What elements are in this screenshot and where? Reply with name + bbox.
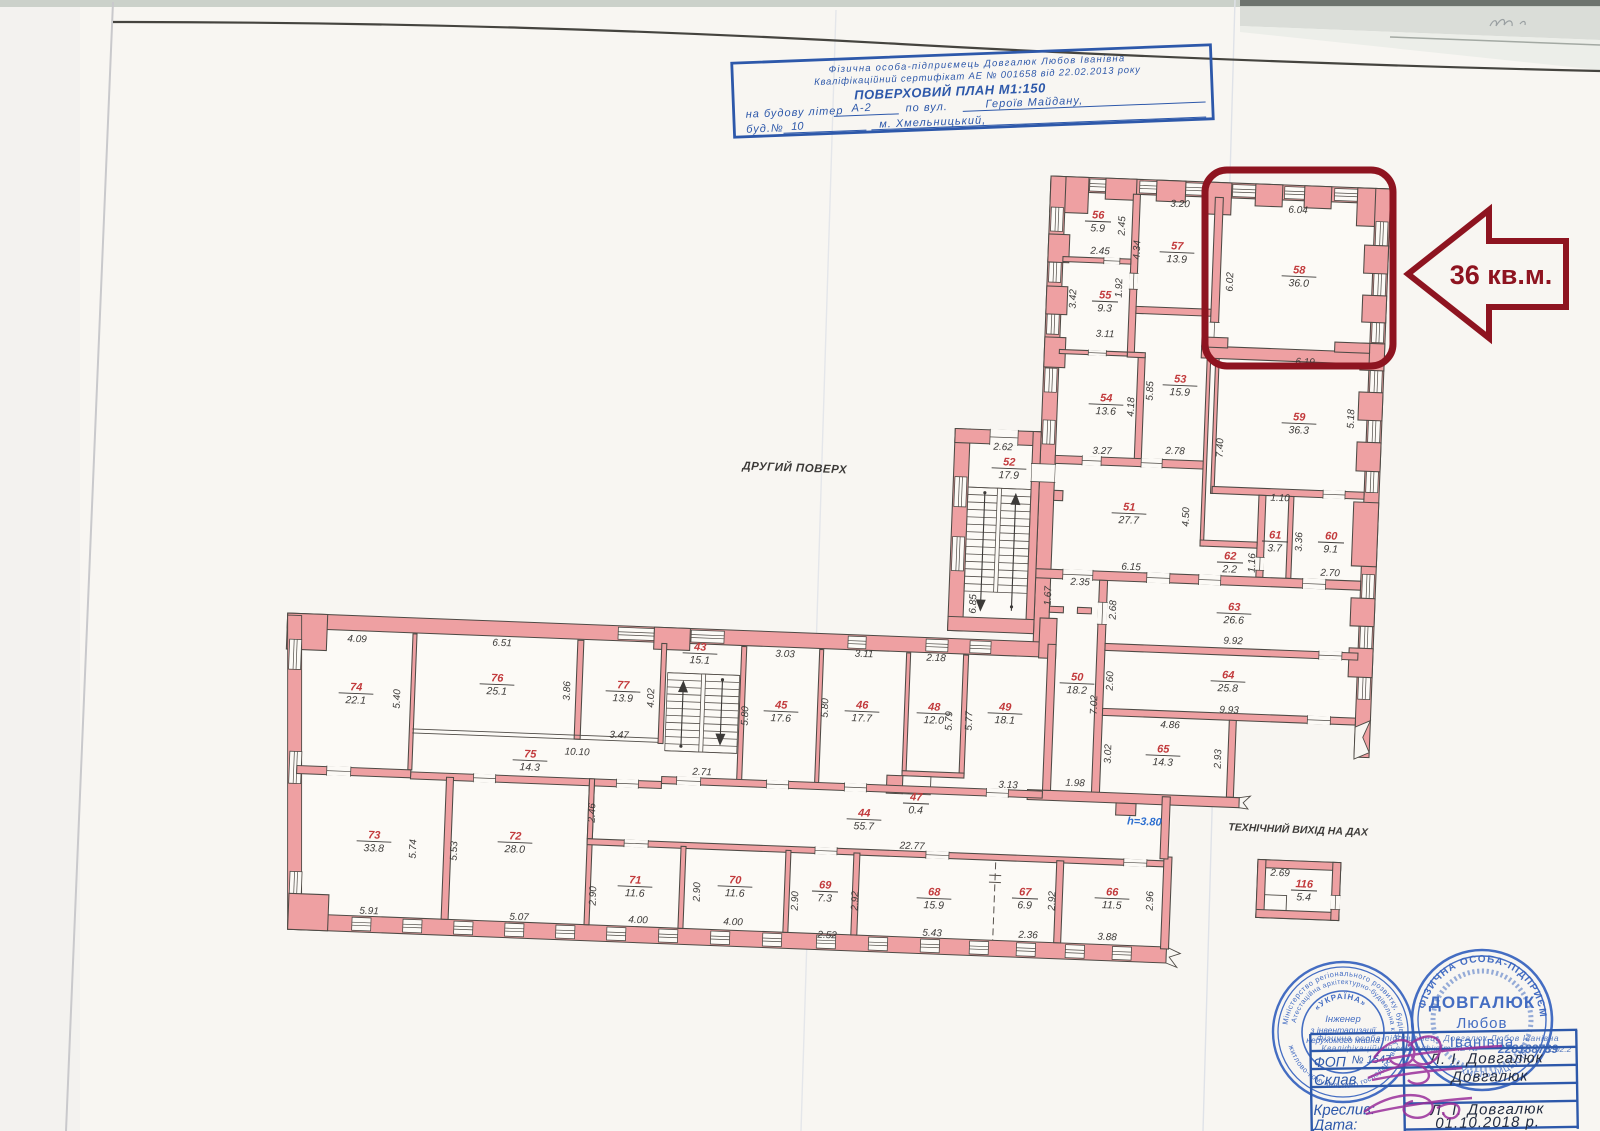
svg-text:2.90: 2.90 [692, 882, 704, 903]
svg-text:45: 45 [774, 699, 789, 712]
svg-text:3.42: 3.42 [1068, 289, 1080, 309]
svg-text:3.03: 3.03 [775, 649, 795, 661]
svg-text:11.6: 11.6 [625, 887, 645, 900]
svg-text:Довгалюк: Довгалюк [1449, 1068, 1528, 1086]
svg-text:5.91: 5.91 [359, 906, 379, 918]
svg-text:7.02: 7.02 [1089, 695, 1101, 715]
svg-text:Інженер: Інженер [1325, 1014, 1360, 1025]
svg-text:5.80: 5.80 [820, 698, 832, 718]
svg-text:53: 53 [1174, 373, 1187, 385]
svg-text:50: 50 [1071, 671, 1085, 683]
svg-text:2.62: 2.62 [992, 442, 1013, 454]
svg-text:2.60: 2.60 [1105, 671, 1117, 692]
svg-text:5.80: 5.80 [740, 706, 752, 726]
svg-text:1.98: 1.98 [1065, 778, 1085, 790]
svg-text:68: 68 [928, 886, 942, 898]
svg-text:13.9: 13.9 [612, 692, 633, 705]
svg-text:17.9: 17.9 [998, 469, 1019, 482]
svg-text:2.92: 2.92 [1047, 891, 1059, 912]
svg-text:3.11: 3.11 [855, 649, 874, 661]
svg-text:55.7: 55.7 [853, 820, 875, 833]
svg-text:51: 51 [1123, 501, 1136, 513]
svg-text:69: 69 [819, 879, 833, 891]
svg-text:2.92: 2.92 [850, 891, 862, 912]
svg-text:3.13: 3.13 [998, 780, 1018, 792]
svg-text:2.18: 2.18 [925, 653, 946, 665]
svg-text:3.36: 3.36 [1294, 532, 1306, 552]
svg-text:11.5: 11.5 [1102, 899, 1122, 912]
svg-text:22.77: 22.77 [898, 840, 925, 852]
svg-text:18.2: 18.2 [1066, 684, 1087, 697]
svg-text:4.34: 4.34 [1132, 240, 1144, 260]
svg-text:4.00: 4.00 [723, 917, 743, 929]
svg-text:65: 65 [1157, 743, 1171, 755]
svg-text:15.9: 15.9 [923, 899, 944, 912]
svg-text:44: 44 [857, 807, 871, 819]
svg-text:10: 10 [791, 120, 805, 132]
svg-text:2.36: 2.36 [1017, 930, 1038, 942]
svg-text:1.10: 1.10 [1270, 493, 1290, 505]
svg-text:2.69: 2.69 [1269, 868, 1290, 880]
svg-text:3.02: 3.02 [1103, 744, 1115, 764]
svg-text:5.85: 5.85 [1145, 381, 1157, 401]
svg-text:62: 62 [1224, 550, 1237, 562]
svg-text:14.3: 14.3 [519, 761, 540, 774]
svg-text:2.46: 2.46 [587, 803, 599, 824]
svg-text:6.02: 6.02 [1225, 272, 1237, 292]
svg-text:Склав: Склав [1314, 1071, 1357, 1089]
svg-text:9.1: 9.1 [1323, 543, 1338, 556]
svg-text:2.96: 2.96 [1145, 891, 1157, 912]
svg-text:48: 48 [927, 701, 942, 714]
svg-text:61: 61 [1269, 529, 1282, 541]
svg-text:ФОП: ФОП [1314, 1053, 1347, 1070]
svg-text:25.1: 25.1 [485, 685, 507, 698]
svg-text:43: 43 [693, 641, 707, 653]
svg-text:3.86: 3.86 [562, 681, 574, 701]
svg-text:9.92: 9.92 [1223, 636, 1243, 648]
svg-text:3.7: 3.7 [1267, 542, 1283, 555]
svg-text:17.6: 17.6 [770, 712, 791, 725]
svg-text:74: 74 [350, 681, 363, 693]
svg-text:4.18: 4.18 [1126, 397, 1138, 417]
svg-text:12.0: 12.0 [923, 714, 944, 727]
svg-text:3.20: 3.20 [1170, 199, 1190, 211]
svg-text:59: 59 [1293, 411, 1307, 423]
svg-text:3.11: 3.11 [1096, 329, 1115, 341]
svg-text:5.18: 5.18 [1346, 409, 1358, 429]
svg-text:9.93: 9.93 [1219, 705, 1239, 717]
svg-text:55: 55 [1099, 289, 1113, 301]
svg-text:54: 54 [1100, 392, 1113, 404]
svg-text:ДОВГАЛЮК: ДОВГАЛЮК [1429, 993, 1536, 1012]
svg-text:3.47: 3.47 [609, 730, 629, 742]
svg-text:22.02.2: 22.02.2 [1542, 1044, 1572, 1054]
svg-text:2.45: 2.45 [1089, 246, 1110, 258]
svg-text:36.0: 36.0 [1288, 277, 1309, 290]
svg-text:5.9: 5.9 [1090, 222, 1105, 235]
svg-text:60: 60 [1325, 530, 1339, 542]
svg-text:4.50: 4.50 [1181, 507, 1193, 527]
svg-text:4.09: 4.09 [347, 634, 367, 646]
svg-text:5.53: 5.53 [449, 841, 461, 861]
svg-text:13.6: 13.6 [1095, 405, 1116, 418]
svg-text:2.35: 2.35 [1069, 577, 1090, 589]
svg-text:2.52: 2.52 [816, 930, 837, 942]
svg-text:73: 73 [368, 829, 381, 841]
svg-text:2.45: 2.45 [1117, 216, 1129, 237]
svg-text:6.51: 6.51 [492, 638, 512, 650]
svg-text:13.9: 13.9 [1166, 253, 1187, 266]
svg-text:5.07: 5.07 [509, 912, 529, 924]
svg-text:5.43: 5.43 [922, 928, 942, 940]
svg-text:70: 70 [729, 874, 743, 886]
svg-text:76: 76 [491, 672, 505, 684]
svg-text:А-2: А-2 [850, 102, 872, 115]
svg-text:0.4: 0.4 [908, 804, 923, 817]
svg-text:36 кв.м.: 36 кв.м. [1450, 260, 1553, 290]
svg-text:63: 63 [1228, 601, 1241, 613]
svg-text:01.10.2018 р.: 01.10.2018 р. [1435, 1113, 1540, 1131]
svg-text:Дата:: Дата: [1312, 1116, 1358, 1131]
svg-text:5.40: 5.40 [392, 689, 404, 709]
svg-text:2.71: 2.71 [691, 767, 712, 779]
svg-text:1.92: 1.92 [1114, 278, 1126, 298]
svg-text:5.4: 5.4 [1296, 891, 1311, 904]
svg-text:2.70: 2.70 [1319, 568, 1340, 580]
svg-text:27.7: 27.7 [1117, 514, 1140, 527]
svg-text:6.04: 6.04 [1288, 205, 1308, 217]
svg-text:1.67: 1.67 [1043, 586, 1055, 606]
svg-text:9.3: 9.3 [1097, 302, 1112, 315]
svg-text:4.02: 4.02 [646, 688, 658, 708]
svg-text:5.77: 5.77 [964, 711, 976, 731]
svg-text:2.93: 2.93 [1213, 749, 1225, 770]
svg-text:1.16: 1.16 [1247, 553, 1259, 573]
svg-text:Любов: Любов [1457, 1015, 1508, 1032]
svg-text:49: 49 [998, 701, 1013, 714]
svg-text:h=3.80: h=3.80 [1127, 815, 1163, 828]
svg-text:116: 116 [1295, 878, 1314, 891]
svg-text:буд.№: буд.№ [746, 122, 784, 135]
svg-text:58: 58 [1293, 264, 1307, 276]
svg-text:25.8: 25.8 [1216, 682, 1238, 695]
svg-text:2.68: 2.68 [1108, 600, 1120, 621]
svg-text:75: 75 [524, 748, 538, 760]
svg-text:10.10: 10.10 [564, 747, 590, 759]
svg-text:67: 67 [1019, 886, 1033, 898]
svg-text:17.7: 17.7 [851, 712, 873, 725]
svg-text:по вул.: по вул. [905, 101, 948, 115]
svg-text:4.86: 4.86 [1160, 720, 1180, 732]
svg-text:57: 57 [1171, 240, 1185, 252]
svg-text:36.3: 36.3 [1288, 424, 1309, 437]
svg-text:77: 77 [617, 679, 631, 691]
svg-text:6.85: 6.85 [968, 594, 980, 614]
svg-text:Л. І. Довгалюк: Л. І. Довгалюк [1429, 1049, 1544, 1068]
svg-text:64: 64 [1222, 669, 1235, 681]
svg-text:28.0: 28.0 [503, 843, 525, 856]
svg-text:5.74: 5.74 [408, 839, 420, 859]
svg-text:7.3: 7.3 [817, 892, 832, 905]
svg-text:3.88: 3.88 [1097, 932, 1117, 944]
svg-text:4.00: 4.00 [628, 915, 648, 927]
svg-text:2.90: 2.90 [790, 891, 802, 912]
svg-text:72: 72 [509, 830, 522, 842]
svg-text:22.1: 22.1 [344, 694, 366, 707]
svg-text:11.6: 11.6 [725, 887, 745, 900]
svg-text:6.9: 6.9 [1017, 899, 1032, 912]
svg-text:2.90: 2.90 [588, 886, 600, 907]
svg-text:15.1: 15.1 [689, 654, 710, 667]
svg-text:33.8: 33.8 [363, 842, 384, 855]
svg-text:46: 46 [855, 699, 870, 712]
svg-text:56: 56 [1092, 209, 1106, 221]
svg-text:7.40: 7.40 [1215, 438, 1227, 458]
svg-text:52: 52 [1003, 456, 1016, 468]
svg-text:66: 66 [1106, 886, 1120, 898]
svg-text:18.1: 18.1 [994, 714, 1015, 727]
svg-text:3.27: 3.27 [1092, 446, 1112, 458]
svg-text:71: 71 [629, 874, 642, 886]
svg-text:6.15: 6.15 [1121, 562, 1141, 574]
svg-text:14.3: 14.3 [1152, 756, 1173, 769]
svg-text:2.2: 2.2 [1221, 563, 1237, 576]
svg-text:47: 47 [909, 791, 924, 804]
svg-text:2.78: 2.78 [1164, 446, 1185, 458]
svg-text:15.9: 15.9 [1169, 386, 1190, 399]
svg-text:5.79: 5.79 [944, 711, 956, 731]
svg-text:26.6: 26.6 [1222, 614, 1244, 627]
